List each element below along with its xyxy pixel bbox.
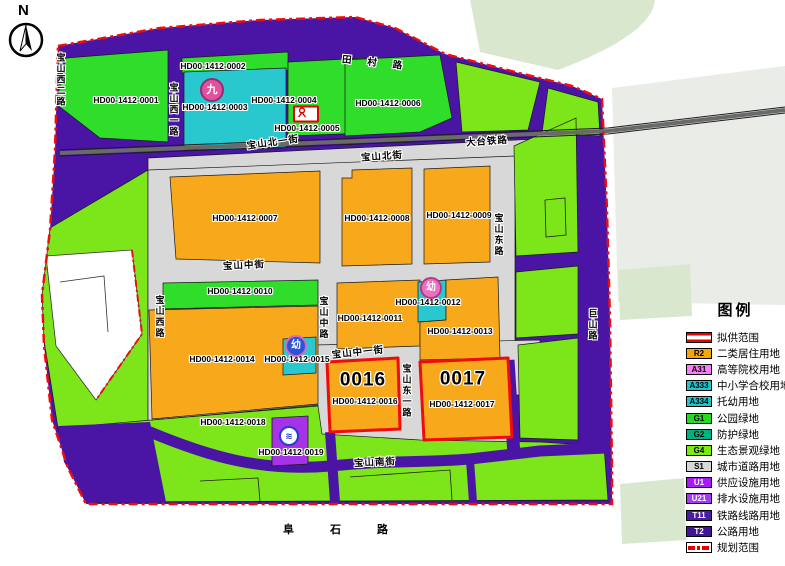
legend-item: T2公路用地 bbox=[686, 523, 785, 539]
legend-code: S1 bbox=[694, 462, 704, 471]
legend-label: 供应设施用地 bbox=[717, 475, 780, 490]
parcel-label-0003: HD00-1412-0003 bbox=[182, 103, 247, 112]
legend-code: T11 bbox=[692, 511, 705, 520]
legend-swatch: A333 bbox=[686, 380, 712, 391]
parcel-label-0013: HD00-1412-0013 bbox=[427, 327, 492, 336]
parcel-label-0007: HD00-1412-0007 bbox=[212, 214, 277, 223]
parcel-label-0002: HD00-1412-0002 bbox=[180, 62, 245, 71]
legend-swatch: G4 bbox=[686, 445, 712, 456]
legend-item: 规划范围 bbox=[686, 539, 785, 555]
road-label-baoshan-middle: 宝山中路 bbox=[319, 296, 328, 340]
parcel-label-0010: HD00-1412-0010 bbox=[207, 287, 272, 296]
parcel-label-0008: HD00-1412-0008 bbox=[344, 214, 409, 223]
legend-code: T2 bbox=[694, 527, 703, 536]
legend-rows: 拟供范围R2二类居住用地A31高等院校用地A333中小学合校用地A334托幼用地… bbox=[686, 329, 785, 556]
kindergarten-badge-icon-1: 幼 bbox=[285, 335, 307, 357]
legend-swatch bbox=[686, 332, 712, 343]
plot-number-0017: 0017 bbox=[440, 370, 486, 389]
legend-swatch bbox=[686, 542, 712, 553]
legend-label: 拟供范围 bbox=[717, 330, 759, 345]
plot-number-0016: 0016 bbox=[340, 371, 386, 390]
eco-green-topright-1 bbox=[456, 62, 540, 132]
legend-title: 图例 bbox=[686, 299, 785, 320]
road-label-baoshan-west-1st: 宝山西一路 bbox=[169, 83, 178, 138]
legend-label: 高等院校用地 bbox=[717, 362, 780, 377]
legend-swatch: A334 bbox=[686, 396, 712, 407]
legend-label: 防护绿地 bbox=[717, 427, 759, 442]
legend-label: 生态景观绿地 bbox=[717, 443, 780, 458]
legend-label: 公路用地 bbox=[717, 524, 759, 539]
drainage-badge-icon: ≋ bbox=[279, 426, 299, 446]
eco-green-east-3 bbox=[518, 338, 578, 440]
legend-item: G4生态景观绿地 bbox=[686, 442, 785, 458]
legend-item: R2二类居住用地 bbox=[686, 345, 785, 361]
legend-swatch: G1 bbox=[686, 413, 712, 424]
legend-label: 托幼用地 bbox=[717, 394, 759, 409]
parcel-label-0001: HD00-1412-0001 bbox=[93, 96, 158, 105]
parcel-label-0011: HD00-1412-0011 bbox=[338, 314, 403, 323]
legend-label: 规划范围 bbox=[717, 540, 759, 555]
legend-swatch: S1 bbox=[686, 461, 712, 472]
school-badge-icon: 九 bbox=[200, 78, 224, 102]
legend-swatch: T2 bbox=[686, 526, 712, 537]
legend-label: 二类居住用地 bbox=[717, 346, 780, 361]
legend-item: S1城市道路用地 bbox=[686, 459, 785, 475]
legend-item: A31高等院校用地 bbox=[686, 361, 785, 377]
legend-code: U1 bbox=[694, 478, 704, 487]
substation-glyph bbox=[295, 108, 309, 118]
parcel-label-0006: HD00-1412-0006 bbox=[355, 99, 420, 108]
legend-code: R2 bbox=[694, 349, 704, 358]
legend-code: G2 bbox=[694, 430, 705, 439]
road-label-fushi: 阜石路 bbox=[283, 525, 424, 536]
legend-item: A334托幼用地 bbox=[686, 394, 785, 410]
context-green-top bbox=[470, 0, 655, 70]
road-label-jushan: 巨山路 bbox=[588, 309, 597, 342]
context-green-mid bbox=[618, 264, 692, 320]
street-label-baoshan-south: 宝山南街 bbox=[354, 457, 396, 469]
legend-swatch: U21 bbox=[686, 493, 712, 504]
substation-icon bbox=[293, 106, 319, 123]
street-label-baoshan-middle: 宝山中街 bbox=[223, 260, 265, 272]
compass-rose bbox=[10, 24, 42, 56]
context-green-bottom bbox=[620, 478, 686, 544]
eco-green-east-2 bbox=[516, 266, 578, 338]
legend-code: A31 bbox=[692, 365, 707, 374]
legend-item: 拟供范围 bbox=[686, 329, 785, 345]
legend-label: 中小学合校用地 bbox=[717, 378, 785, 393]
road-label-baoshan-west-2nd: 宝山西二路 bbox=[56, 53, 65, 108]
legend-item: G1公园绿地 bbox=[686, 410, 785, 426]
legend-code: A334 bbox=[689, 397, 708, 406]
parcel-label-0016: HD00-1412-0016 bbox=[332, 397, 397, 406]
parcel-label-0012: HD00-1412-0012 bbox=[395, 298, 460, 307]
map-canvas bbox=[0, 0, 785, 566]
legend-item: U1供应设施用地 bbox=[686, 475, 785, 491]
legend-panel: 图例 拟供范围R2二类居住用地A31高等院校用地A333中小学合校用地A334托… bbox=[686, 299, 785, 556]
legend-label: 公园绿地 bbox=[717, 411, 759, 426]
legend-item: G2防护绿地 bbox=[686, 426, 785, 442]
road-label-baoshan-east-1st: 宝山东一路 bbox=[402, 364, 411, 419]
road-label-baoshan-west: 宝山西路 bbox=[155, 295, 164, 339]
legend-item: U21排水设施用地 bbox=[686, 491, 785, 507]
highway-south-3 bbox=[330, 432, 335, 502]
parcel-label-0014: HD00-1412-0014 bbox=[189, 355, 254, 364]
legend-item: A333中小学合校用地 bbox=[686, 378, 785, 394]
legend-code: G1 bbox=[694, 414, 705, 423]
parcel-label-0005: HD00-1412-0005 bbox=[274, 124, 339, 133]
legend-label: 铁路线路用地 bbox=[717, 508, 780, 523]
parcel-label-0018: HD00-1412-0018 bbox=[200, 418, 265, 427]
legend-swatch: T11 bbox=[686, 510, 712, 521]
legend-code: A333 bbox=[689, 381, 708, 390]
parcel-label-0004: HD00-1412-0004 bbox=[251, 96, 316, 105]
parcel-label-0009: HD00-1412-0009 bbox=[426, 211, 491, 220]
legend-swatch: G2 bbox=[686, 429, 712, 440]
legend-label: 城市道路用地 bbox=[717, 459, 780, 474]
legend-swatch: A31 bbox=[686, 364, 712, 375]
zoning-map: N HD00-1412-0001 HD00-1412-0002 HD00-141… bbox=[0, 0, 785, 566]
legend-label: 排水设施用地 bbox=[717, 491, 780, 506]
compass-north-label: N bbox=[18, 2, 29, 19]
legend-item: T11铁路线路用地 bbox=[686, 507, 785, 523]
kindergarten-badge-icon-2: 幼 bbox=[420, 277, 442, 299]
legend-swatch: R2 bbox=[686, 348, 712, 359]
parcel-label-0017: HD00-1412-0017 bbox=[429, 400, 494, 409]
highway-south-4 bbox=[470, 460, 473, 502]
legend-code: U21 bbox=[692, 494, 707, 503]
legend-swatch: U1 bbox=[686, 477, 712, 488]
legend-code: G4 bbox=[694, 446, 705, 455]
parcel-label-0019: HD00-1412-0019 bbox=[258, 448, 323, 457]
road-label-baoshan-east: 宝山东路 bbox=[494, 213, 503, 257]
